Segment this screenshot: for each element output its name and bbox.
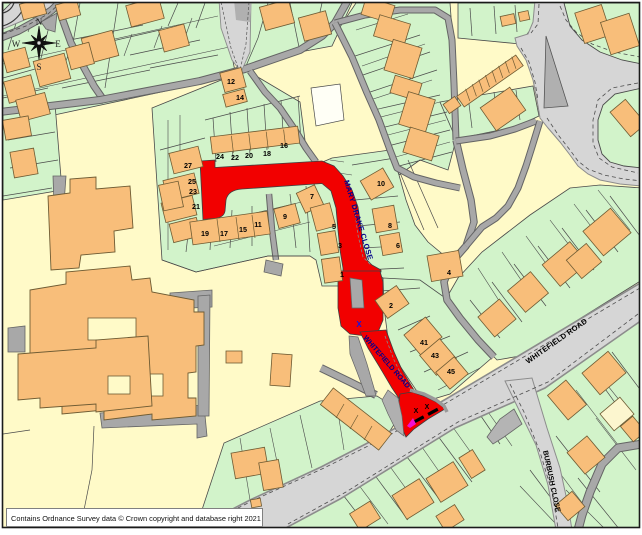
svg-text:14: 14: [236, 93, 244, 102]
svg-text:4: 4: [447, 268, 451, 277]
svg-text:6: 6: [396, 241, 400, 250]
svg-text:3: 3: [338, 241, 342, 250]
svg-text:Contains Ordnance Survey data: Contains Ordnance Survey data © Crown co…: [11, 514, 261, 523]
svg-text:22: 22: [231, 153, 239, 162]
svg-text:X: X: [414, 408, 419, 415]
svg-text:1: 1: [340, 270, 344, 279]
svg-text:45: 45: [447, 367, 455, 376]
svg-text:12: 12: [227, 77, 235, 86]
svg-text:43: 43: [431, 351, 439, 360]
svg-text:S: S: [36, 62, 41, 72]
svg-text:W: W: [12, 39, 21, 49]
svg-text:9: 9: [283, 212, 287, 221]
svg-text:10: 10: [377, 179, 385, 188]
svg-text:27: 27: [184, 161, 192, 170]
svg-text:5: 5: [332, 222, 336, 231]
svg-text:41: 41: [420, 338, 428, 347]
svg-text:21: 21: [192, 202, 200, 211]
svg-text:20: 20: [245, 151, 253, 160]
svg-text:17: 17: [220, 229, 228, 238]
svg-text:11: 11: [254, 220, 262, 229]
svg-text:19: 19: [201, 229, 209, 238]
svg-text:8: 8: [388, 221, 392, 230]
svg-text:15: 15: [239, 225, 247, 234]
svg-text:18: 18: [263, 149, 271, 158]
svg-text:7: 7: [310, 192, 314, 201]
svg-text:N: N: [36, 17, 43, 27]
svg-text:23: 23: [189, 187, 197, 196]
svg-text:25: 25: [188, 177, 196, 186]
svg-text:X: X: [425, 404, 430, 411]
svg-text:24: 24: [216, 152, 224, 161]
svg-text:16: 16: [280, 141, 288, 150]
svg-text:E: E: [55, 39, 61, 49]
svg-text:2: 2: [389, 301, 393, 310]
svg-text:X: X: [356, 320, 362, 329]
